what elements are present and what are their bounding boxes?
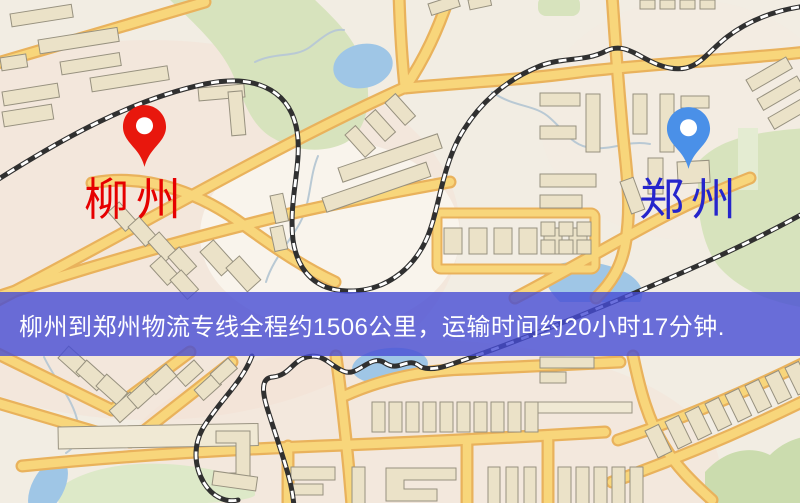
origin-label: 柳州: [84, 178, 188, 223]
route-info-text: 柳州到郑州物流专线全程约1506公里，运输时间约20小时17分钟.: [19, 307, 725, 342]
route-info-banner: 柳州到郑州物流专线全程约1506公里，运输时间约20小时17分钟.: [0, 292, 800, 356]
map-background: [0, 0, 800, 503]
destination-label: 郑州: [639, 178, 743, 223]
origin-pin-icon[interactable]: [121, 103, 168, 168]
map-view: 柳州 郑州 柳州到郑州物流专线全程约1506公里，运输时间约20小时17分钟.: [0, 0, 800, 503]
destination-pin-icon[interactable]: [665, 105, 712, 170]
